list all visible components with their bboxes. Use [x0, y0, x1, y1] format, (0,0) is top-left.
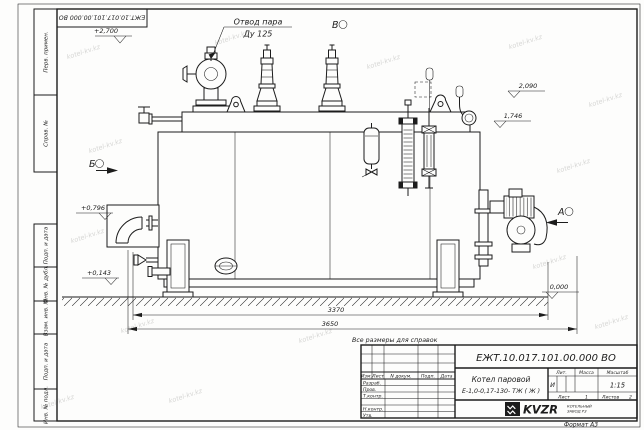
dim-text-3650: 3650 [322, 320, 339, 328]
elevation-mark-top: +2,700 [94, 27, 132, 43]
sheets-label: Листов [601, 395, 619, 401]
reversed-designation: ЕЖТ.10.017.101.00.000 ВО [59, 14, 146, 21]
scale-value: 1:15 [610, 382, 625, 390]
mass-header: Масса [579, 370, 594, 376]
reversed-designation-box: ЕЖТ.10.017.101.00.000 ВО [57, 9, 147, 27]
col-ndoc: N докум. [390, 374, 411, 380]
steam-outlet-valve [183, 47, 229, 112]
safety-valve-2 [319, 45, 345, 111]
col-data: Дата [440, 374, 453, 380]
dim-text-3370: 3370 [328, 306, 345, 314]
company-line2: ЗАВОД РЗ [567, 409, 587, 414]
sheets-value: 2 [629, 395, 632, 401]
frame-field-label: Взам. инв. № [44, 299, 50, 337]
col-list: Лист [371, 374, 384, 380]
row-razrab: Разраб. [363, 381, 381, 387]
callout-line1: Отвод пара [234, 18, 283, 27]
company-logo: KVZR КОТЕЛЬНЫЙ ЗАВОД РЗ [505, 402, 592, 417]
support-skid-right [433, 240, 463, 297]
frame-field-label: Инв. № подл. [44, 386, 50, 424]
format-label: Формат А3 [564, 422, 598, 429]
elevation-text: +2,700 [94, 27, 118, 35]
reference-note: Все размеры для справок [352, 337, 438, 344]
row-utv: Утв. [363, 413, 373, 419]
sheet-label: Лист [557, 395, 570, 401]
safety-valve-1 [254, 45, 280, 111]
view-letter: В [332, 20, 339, 31]
lit-header: Лит. [555, 370, 567, 376]
callout-line2: Ду 125 [243, 30, 273, 39]
row-prov: Пров. [363, 387, 376, 393]
lifting-lug-left [227, 97, 245, 113]
elevation-text: 0,000 [550, 283, 569, 291]
elevation-text: +0,143 [87, 269, 111, 277]
frame-field-label: Подп. и дата [44, 226, 50, 264]
drawing-sheet: kotel-kv.kz kotel-kv.kz kotel-kv.kz kote… [0, 0, 644, 430]
frame-field-label: Перв. примен. [44, 31, 50, 73]
view-letter: Б [89, 159, 96, 170]
callout-steam-outlet: Отвод пара Ду 125 [209, 18, 292, 60]
frame-field-label: Инв. № дубл. [44, 265, 50, 303]
frame-field-label: Справ. № [44, 120, 50, 147]
elevation-text: +0,796 [81, 204, 105, 212]
frame-field-label: Подп. и дата [44, 342, 50, 380]
designation: ЕЖТ.10.017.101.00.000 ВО [476, 353, 616, 364]
elevation-text: 1,746 [504, 112, 523, 120]
col-podp: Подп. [421, 374, 435, 380]
sheet-value: 1 [585, 395, 588, 401]
lifting-lug-right [430, 95, 451, 112]
row-nkontr: Н.контр. [363, 407, 384, 413]
elevation-mark-left-lower: +0,143 [82, 269, 119, 285]
ground-hatch [62, 297, 548, 306]
elevation-mark-right-upper: 2,090 [508, 82, 545, 98]
product-name-line1: Котел паровой [472, 375, 531, 384]
col-izm: Изм. [361, 374, 372, 380]
scale-header: Масштаб [607, 370, 629, 376]
row-tkontr: Т.контр. [363, 394, 383, 400]
product-name-line2: Е-1,0-0,17-130- ТЖ ( Ж ) [462, 388, 540, 395]
lit-value: И [550, 381, 555, 389]
title-block: Изм. Лист N докум. Подп. Дата Разраб. Пр… [361, 345, 637, 419]
sampling-faucet [138, 107, 182, 124]
logo-text: KVZR [523, 403, 558, 417]
view-label-b: Б [89, 159, 118, 174]
burner-assembly [475, 189, 547, 266]
view-label-v: В [332, 20, 347, 31]
elevation-mark-ground: 0,000 [542, 283, 579, 299]
view-label-a: А [546, 207, 573, 226]
left-margin-fields: Перв. примен. Справ. № Подп. и дата Инв.… [34, 9, 57, 424]
level-sensor [415, 68, 433, 112]
view-letter: А [557, 207, 565, 218]
elevation-mark-right-lower: 1,746 [494, 112, 531, 128]
elevation-text: 2,090 [519, 82, 538, 90]
manhole [215, 258, 237, 274]
